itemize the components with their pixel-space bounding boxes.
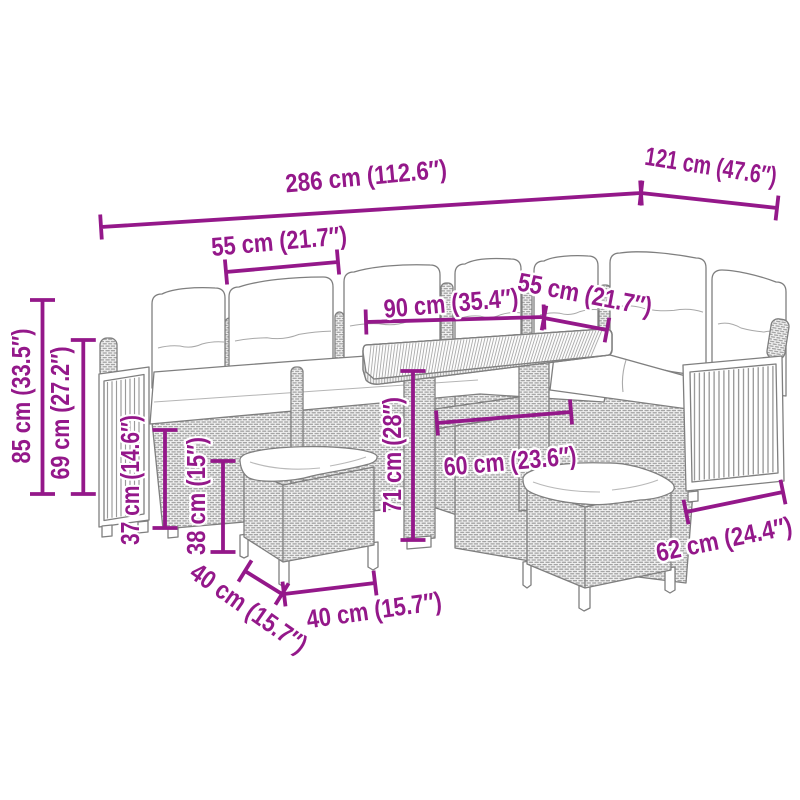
svg-text:286 cm (112.6″): 286 cm (112.6″)	[284, 154, 448, 199]
svg-text:37 cm (14.6″): 37 cm (14.6″)	[115, 415, 145, 545]
svg-text:40 cm (15.7″): 40 cm (15.7″)	[305, 586, 444, 635]
svg-text:121 cm (47.6″): 121 cm (47.6″)	[643, 141, 779, 191]
svg-text:38 cm (15″): 38 cm (15″)	[181, 437, 211, 555]
svg-text:71 cm (28″): 71 cm (28″)	[377, 397, 407, 513]
svg-text:85 cm (33.5″): 85 cm (33.5″)	[6, 329, 36, 464]
svg-text:55 cm (21.7″): 55 cm (21.7″)	[210, 220, 348, 262]
svg-text:69 cm (27.2″): 69 cm (27.2″)	[45, 347, 75, 480]
